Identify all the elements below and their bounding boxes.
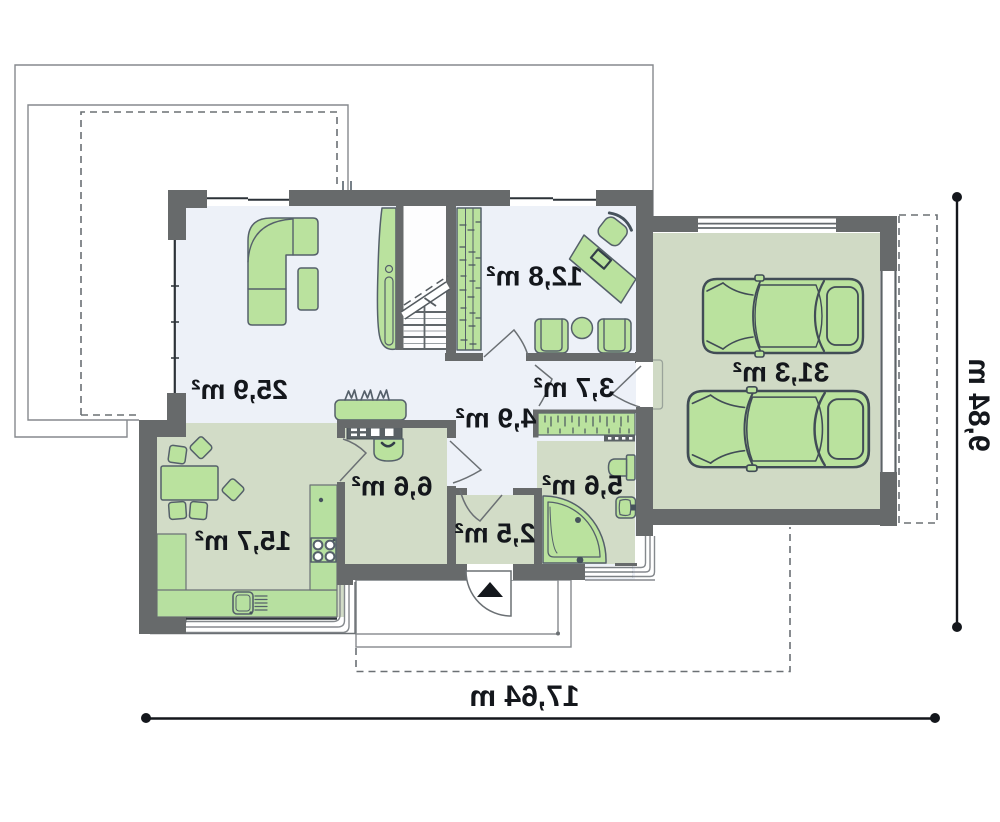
svg-text:2,5 m²: 2,5 m²: [455, 518, 536, 549]
svg-text:9,84 m: 9,84 m: [962, 358, 995, 451]
svg-text:3,7 m²: 3,7 m²: [534, 372, 615, 403]
svg-text:12,8 m²: 12,8 m²: [486, 261, 583, 292]
svg-text:4,9 m²: 4,9 m²: [456, 403, 537, 434]
svg-text:25,9 m²: 25,9 m²: [191, 374, 288, 405]
svg-text:15,7 m²: 15,7 m²: [195, 525, 292, 556]
svg-text:31,3 m²: 31,3 m²: [733, 357, 830, 388]
svg-text:6,6 m²: 6,6 m²: [352, 471, 433, 502]
svg-text:5,6 m²: 5,6 m²: [542, 470, 623, 501]
svg-text:17,64 m: 17,64 m: [469, 680, 579, 713]
